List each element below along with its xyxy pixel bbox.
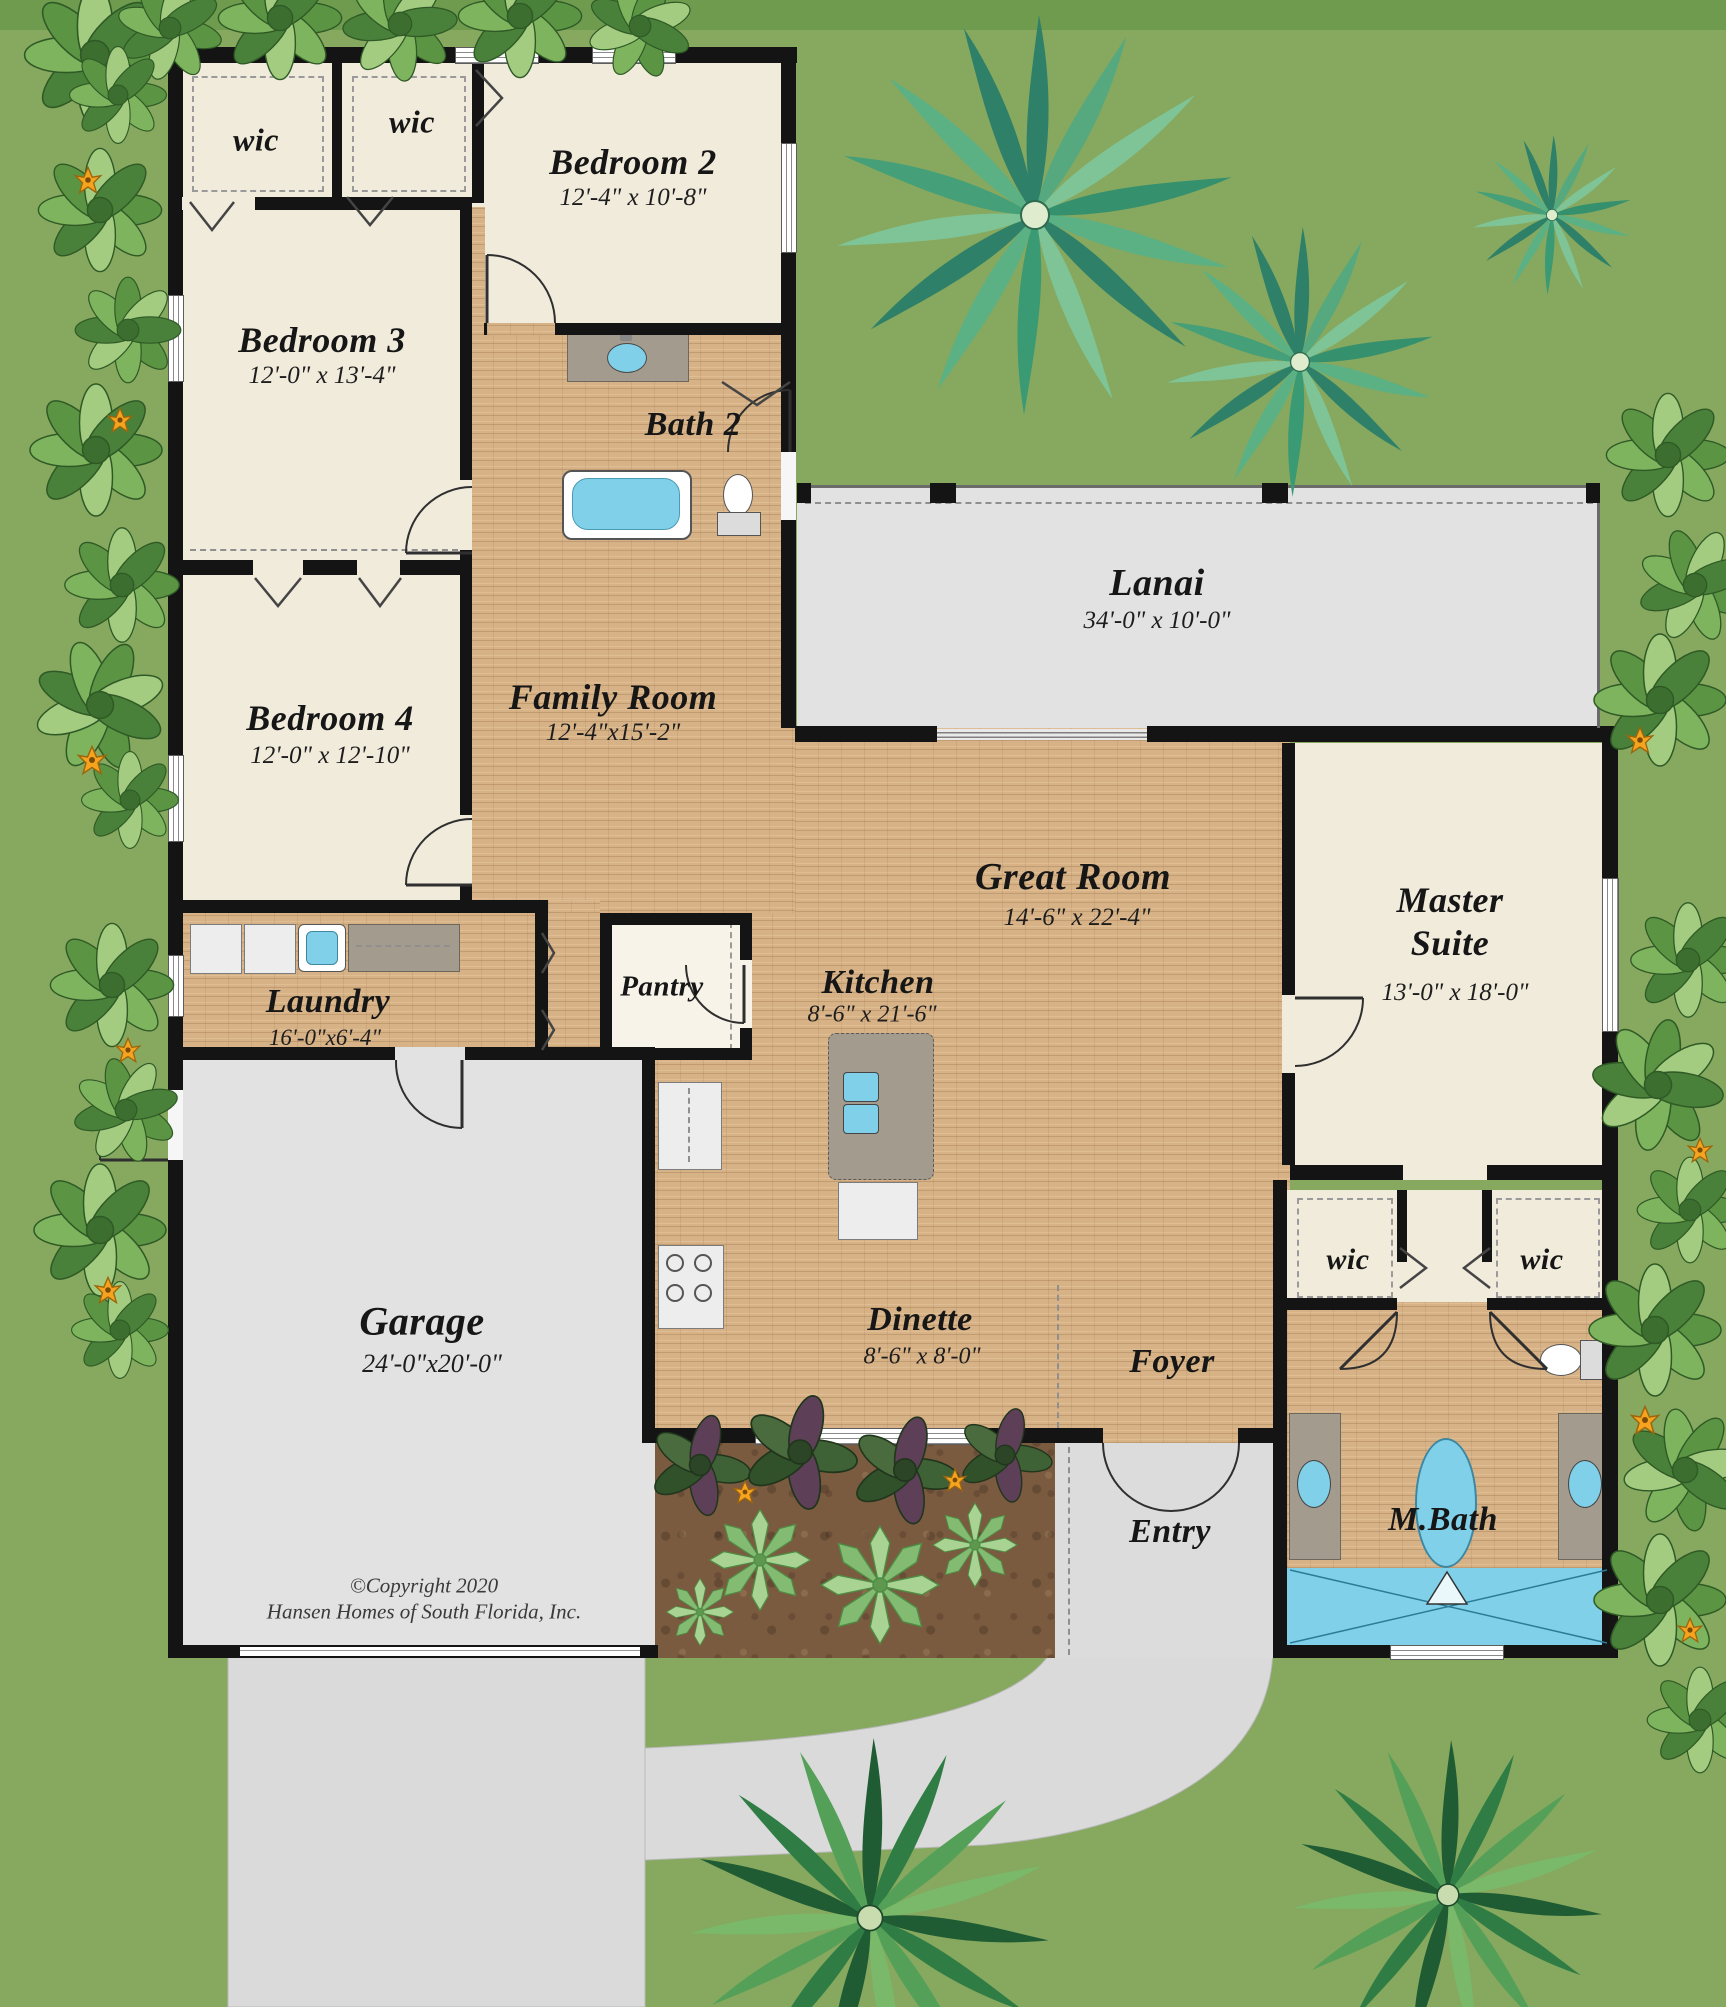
bath2-faucet-icon [620,334,632,341]
window [168,955,184,1017]
label-master-bath: M.Bath [1388,1501,1498,1539]
bath2-tub-water [572,478,680,530]
driveway [228,1652,645,2007]
refrigerator-door-dashed [688,1088,690,1162]
copyright-line2: Hansen Homes of South Florida, Inc. [267,1600,581,1625]
wall [600,913,752,925]
dims-dinette: 8'-6" x 8'-0" [863,1344,980,1371]
dims-master: 13'-0" x 18'-0" [1382,979,1529,1007]
window [455,47,539,64]
door-opening [357,560,400,575]
label-great-room: Great Room [975,855,1171,899]
entry-walkway [645,1645,1273,1860]
washer [190,924,242,974]
door-opening [460,480,472,550]
lanai-screen [1597,485,1600,728]
window [168,755,184,842]
label-master-line2: Suite [1411,922,1490,964]
dims-great-room: 14'-6" x 22'-4" [1004,904,1151,932]
burner-icon [666,1254,684,1272]
laundry-counter-dashed [356,945,450,947]
wall [255,197,472,210]
label-wic-bed2: wic [389,104,435,141]
label-bedroom2: Bedroom 2 [549,141,717,183]
copyright-line1: ©Copyright 2020 [350,1574,498,1599]
burner-icon [694,1254,712,1272]
master-shower [1287,1568,1610,1645]
label-foyer: Foyer [1129,1343,1215,1381]
window [755,1428,979,1445]
door-opening [487,323,555,335]
exterior-door-opening [781,452,796,520]
wall [535,913,548,1060]
burner-icon [694,1284,712,1302]
wall [1602,726,1618,1658]
sliding-glass-door [937,729,1147,740]
label-bath2: Bath 2 [645,406,742,444]
entry-joint-dashed [1068,1447,1070,1655]
window [1602,878,1619,1032]
window [781,143,797,253]
wall [600,1048,752,1060]
dims-laundry: 16'-0"x6'-4" [269,1025,381,1051]
wall [168,47,183,1658]
bath2-toilet [723,474,753,516]
lanai-screen [797,485,1600,488]
wall [600,913,612,1060]
wall [1147,726,1293,742]
wall [1487,1298,1610,1310]
wall [332,63,342,203]
hall-opening [548,900,600,913]
bath2-sink [607,343,647,373]
wall [1282,743,1295,1165]
front-planting-bed [655,1428,1055,1658]
ceiling-break-dashed [190,549,458,551]
mbath-sink-left [1297,1460,1331,1508]
door-opening [182,197,255,210]
label-bedroom3: Bedroom 3 [238,319,406,361]
lanai-post [1262,483,1288,503]
dims-family-room: 12'-4"x15'-2" [546,719,680,747]
dims-bedroom2: 12'-4" x 10'-8" [560,184,707,212]
wall [460,210,472,903]
laundry-sink [306,931,338,965]
wall [1273,1180,1287,1658]
refrigerator [658,1082,722,1170]
window [1390,1645,1504,1660]
door-opening [740,960,752,1028]
label-lanai: Lanai [1109,561,1204,605]
label-bedroom4: Bedroom 4 [246,697,414,739]
dryer [244,924,296,974]
label-entry: Entry [1129,1513,1211,1551]
kitchen-sink-right [843,1104,879,1134]
wall [1287,1298,1397,1310]
dims-bedroom3: 12'-0" x 13'-4" [249,362,396,390]
mbath-sink-right [1568,1460,1602,1508]
label-pantry: Pantry [620,971,704,1004]
dims-garage: 24'-0"x20'-0" [362,1349,502,1379]
label-laundry: Laundry [266,983,390,1021]
floor-plan-canvas: wic wic Bedroom 2 12'-4" x 10'-8" Bedroo… [0,0,1726,2007]
dims-kitchen: 8'-6" x 21'-6" [807,1002,936,1029]
door-opening [395,1047,465,1060]
label-kitchen: Kitchen [821,964,934,1002]
wall [795,726,937,742]
label-wic-master-left: wic [1326,1243,1369,1277]
mbath-toilet [1540,1344,1582,1376]
laundry-counter [348,924,460,972]
label-wic-bed3: wic [233,122,279,159]
lanai-post [797,483,811,503]
wall [1482,1190,1492,1262]
lanai-post [1586,483,1600,503]
mbath-toilet-tank [1580,1340,1604,1380]
label-family-room: Family Room [509,676,718,718]
wall [1238,1428,1273,1443]
burner-icon [666,1284,684,1302]
lanai-post [930,483,956,503]
door-opening [460,815,472,885]
lanai-edge-dashed [805,502,1593,504]
wall [182,560,472,575]
label-master-line1: Master [1396,879,1503,921]
window [592,47,676,64]
garage-side-door [168,1090,183,1160]
label-dinette: Dinette [867,1301,972,1339]
label-wic-master-right: wic [1520,1243,1563,1277]
wall [1290,726,1618,742]
wall [472,63,484,203]
kitchen-sink-left [843,1072,879,1102]
door-opening [253,560,303,575]
bath2-toilet-tank [717,512,761,536]
dims-bedroom4: 12'-0" x 12'-10" [250,742,409,770]
hall-opening [1403,1165,1487,1180]
window [168,295,184,382]
door-opening [1282,995,1295,1073]
wall [1397,1190,1407,1262]
wall [642,1060,655,1443]
dims-lanai: 34'-0" x 10'-0" [1084,607,1231,635]
wall [182,900,548,913]
kitchen-cabinet [838,1182,918,1240]
foyer-dinette-dashed [1057,1285,1059,1428]
label-garage: Garage [359,1298,484,1345]
garage-door [240,1647,640,1656]
